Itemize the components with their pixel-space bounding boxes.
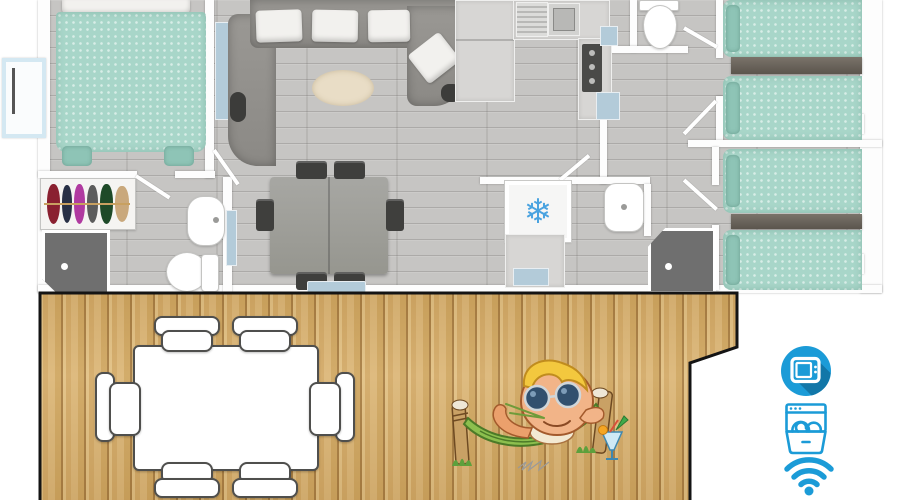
wall-bedroom2-left-b — [716, 96, 723, 142]
dining-chair — [256, 199, 274, 231]
shower-1 — [42, 230, 110, 296]
bed-foot-left — [62, 146, 92, 166]
entrance-door — [2, 58, 46, 138]
sofa-pillow — [312, 10, 359, 43]
sofa-bolster — [230, 92, 246, 122]
outdoor-chair-seat — [309, 382, 341, 436]
bed-foot-right — [164, 146, 194, 166]
bed-pillow — [726, 82, 740, 134]
toilet-1-tank — [201, 254, 219, 292]
shower-drain — [665, 263, 672, 270]
door-handle — [12, 68, 15, 114]
sofa-pillow — [255, 9, 302, 43]
wall-bedroom2-left-a — [716, 0, 723, 58]
wall-bathroom2-right — [644, 184, 651, 236]
hammock-left-post — [452, 400, 469, 464]
sink-drainer — [516, 2, 548, 37]
ac-unit: ❄ — [505, 181, 571, 242]
wall-wc-left — [630, 0, 637, 52]
washbasin-1 — [187, 196, 225, 246]
wall-bedroom3-left-a — [712, 147, 719, 185]
dishwasher-icon — [781, 403, 831, 457]
mascot-illustration — [440, 358, 640, 483]
wall-bedrooms-divider — [688, 140, 882, 147]
unit-divider — [456, 39, 514, 41]
kitchen-blue-panel — [596, 92, 620, 120]
hob-knob — [589, 50, 595, 56]
single-bed — [723, 230, 862, 290]
shower-2 — [648, 228, 716, 294]
double-bed — [56, 12, 206, 152]
washbasin-2 — [604, 183, 644, 232]
dining-chair — [386, 199, 404, 231]
outdoor-chair-back — [232, 478, 298, 498]
kitchen-blue-panel — [600, 26, 618, 46]
tv-icon — [780, 345, 832, 397]
single-bed — [723, 149, 862, 213]
bed-pillow — [726, 5, 740, 52]
bathroom-shelf — [226, 210, 237, 266]
sink-basin — [548, 3, 580, 36]
dining-chair — [334, 161, 365, 179]
hob-knob — [589, 78, 595, 84]
wall-bedroom1-bottom-a — [38, 171, 137, 178]
dining-table — [270, 177, 388, 274]
dining-chair — [296, 161, 327, 179]
bed-pillow — [726, 235, 740, 285]
wall-bedroom1-bottom-b — [175, 171, 215, 178]
utility-blue-panel — [513, 268, 549, 286]
outdoor-chair-seat — [109, 382, 141, 436]
shower-drain — [61, 263, 68, 270]
wardrobe — [40, 178, 136, 230]
sofa-pillow — [368, 10, 411, 43]
fridge-tall-unit — [455, 0, 515, 102]
faucet-dot — [621, 204, 627, 210]
hob-panel — [582, 44, 602, 92]
bed-pillow — [726, 155, 740, 207]
artist-signature — [518, 461, 549, 470]
single-bed — [723, 0, 862, 57]
wifi-icon — [782, 452, 836, 496]
mascot-head — [521, 361, 604, 435]
headboard-shelf — [731, 57, 862, 74]
wall-hall-left — [600, 110, 607, 184]
hob-knob — [589, 64, 595, 70]
table-seam — [328, 177, 330, 274]
headboard-shelf — [731, 214, 862, 229]
single-bed — [723, 76, 862, 140]
outdoor-chair-seat — [239, 330, 291, 352]
faucet-dot — [213, 217, 219, 223]
outdoor-table — [133, 345, 319, 471]
wardrobe-rail — [44, 203, 130, 205]
outdoor-chair-back — [154, 478, 220, 498]
outdoor-chair-seat — [161, 330, 213, 352]
floorplan-screenshot: ❄ — [0, 0, 900, 500]
snowflake-icon: ❄ — [524, 195, 553, 229]
rug — [312, 70, 374, 106]
